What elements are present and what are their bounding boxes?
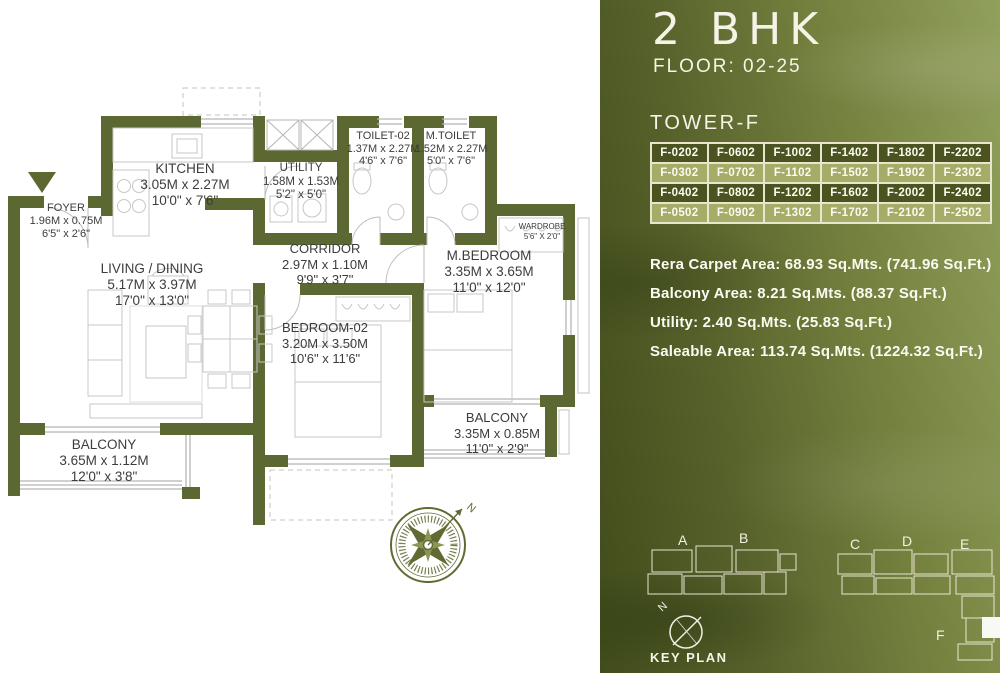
info-panel: 2 BHK FLOOR: 02-25 TOWER-F F-0202 F-0602… — [600, 0, 1000, 673]
room-label-m-bedroom: M.BEDROOM 3.35M x 3.65M 11'0" x 12'0" — [444, 248, 533, 296]
room-dim-metric: 3.05M x 2.27M — [140, 177, 229, 193]
room-dim-metric: 3.35M x 3.65M — [444, 264, 533, 280]
north-letter: N — [656, 600, 670, 614]
room-dim-imperial: 4'6" x 7'6" — [347, 155, 420, 168]
room-name: CORRIDOR — [282, 241, 368, 257]
highlighted-unit-f — [982, 617, 1000, 638]
room-dim-imperial: 9'9" x 3'7" — [282, 272, 368, 288]
building-label-b: B — [739, 530, 748, 546]
room-dim-imperial: 5'6" X 2'0" — [519, 232, 566, 242]
room-label-m-toilet: M.TOILET 1.52M x 2.27M 5'0" x 7'6" — [415, 130, 488, 168]
room-name: M.BEDROOM — [444, 248, 533, 264]
room-dim-imperial: 11'0" x 2'9" — [454, 441, 540, 457]
compass-north-label: N — [464, 501, 478, 515]
room-dim-metric: 3.35M x 0.85M — [454, 426, 540, 442]
room-dim-metric: 3.20M x 3.50M — [282, 336, 368, 352]
room-label-wardrobe: WARDROBE 5'6" X 2'0" — [519, 222, 566, 241]
building-label-c: C — [850, 536, 860, 552]
room-label-corridor: CORRIDOR 2.97M x 1.10M 9'9" x 3'7" — [282, 241, 368, 288]
room-name: BALCONY — [59, 437, 148, 453]
room-dim-imperial: 17'0" x 13'0" — [101, 293, 204, 309]
room-label-living-dining: LIVING / DINING 5.17M x 3.97M 17'0" x 13… — [101, 261, 204, 309]
room-label-bedroom-02: BEDROOM-02 3.20M x 3.50M 10'6" x 11'6" — [282, 320, 368, 367]
room-name: BALCONY — [454, 410, 540, 426]
room-label-balcony-left: BALCONY 3.65M x 1.12M 12'0" x 3'8" — [59, 437, 148, 485]
room-name: UTILITY — [263, 162, 339, 176]
room-label-utility: UTILITY 1.58M x 1.53M 5'2" x 5'0" — [263, 162, 339, 203]
key-plan-caption: KEY PLAN — [650, 650, 728, 665]
room-name: FOYER — [30, 202, 103, 215]
key-plan-north-icon: N — [656, 600, 702, 648]
room-dim-imperial: 5'0" x 7'6" — [415, 155, 488, 168]
key-plan-graphic: A B C D E F N — [600, 0, 1000, 673]
room-name: KITCHEN — [140, 161, 229, 177]
room-dim-metric: 1.96M x 0.75M — [30, 215, 103, 228]
key-plan-buildings — [648, 546, 1000, 660]
building-label-a: A — [678, 532, 688, 548]
room-dim-imperial: 5'2" x 5'0" — [263, 189, 339, 203]
room-name: TOILET-02 — [347, 130, 420, 143]
floorplan-brochure: N FOYER 1.96M x 0.75M 6'5" x 2'6" KITCHE… — [0, 0, 1000, 673]
room-name: LIVING / DINING — [101, 261, 204, 277]
room-name: WARDROBE — [519, 222, 566, 232]
room-dim-metric: 2.97M x 1.10M — [282, 257, 368, 273]
building-label-d: D — [902, 533, 912, 549]
room-dim-imperial: 6'5" x 2'6" — [30, 228, 103, 241]
room-dim-imperial: 11'0" x 12'0" — [444, 280, 533, 296]
building-label-e: E — [960, 536, 969, 552]
room-dim-imperial: 10'0" x 7'6" — [140, 193, 229, 209]
room-name: BEDROOM-02 — [282, 320, 368, 336]
room-dim-imperial: 10'6" x 11'6" — [282, 351, 368, 367]
room-label-balcony-right: BALCONY 3.35M x 0.85M 11'0" x 2'9" — [454, 410, 540, 457]
shaft-boxes — [267, 120, 333, 150]
room-label-toilet-02: TOILET-02 1.37M x 2.27M 4'6" x 7'6" — [347, 130, 420, 168]
room-dim-metric: 1.37M x 2.27M — [347, 143, 420, 156]
room-dim-metric: 1.52M x 2.27M — [415, 143, 488, 156]
room-dim-metric: 5.17M x 3.97M — [101, 277, 204, 293]
room-dim-metric: 1.58M x 1.53M — [263, 176, 339, 190]
room-label-foyer: FOYER 1.96M x 0.75M 6'5" x 2'6" — [30, 202, 103, 241]
room-name: M.TOILET — [415, 130, 488, 143]
room-dim-metric: 3.65M x 1.12M — [59, 453, 148, 469]
compass-icon: N — [387, 501, 478, 586]
room-label-kitchen: KITCHEN 3.05M x 2.27M 10'0" x 7'6" — [140, 161, 229, 209]
room-dim-imperial: 12'0" x 3'8" — [59, 469, 148, 485]
building-label-f: F — [936, 627, 945, 643]
entry-arrow-icon — [28, 172, 56, 193]
floorplan-area: N FOYER 1.96M x 0.75M 6'5" x 2'6" KITCHE… — [0, 0, 600, 673]
